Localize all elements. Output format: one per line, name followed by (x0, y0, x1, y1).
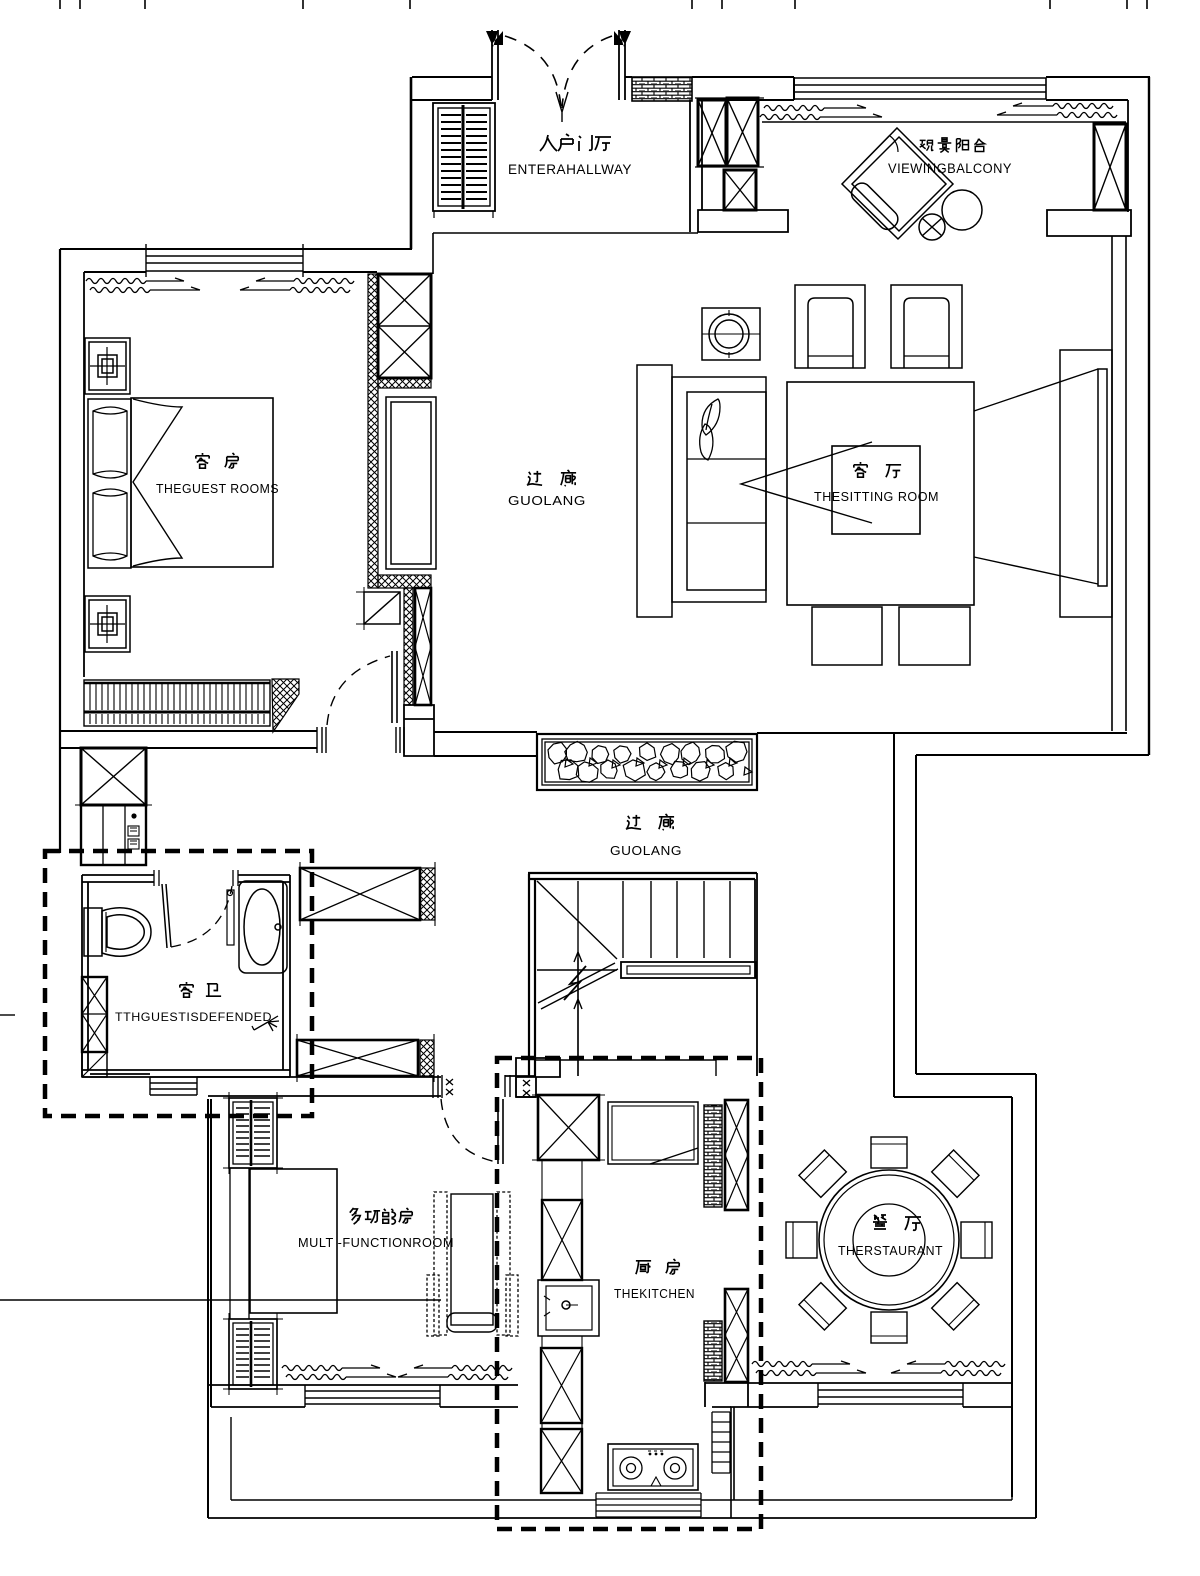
svg-text:THERSTAURANT: THERSTAURANT (838, 1244, 943, 1258)
svg-text:THESITTING ROOM: THESITTING ROOM (814, 490, 939, 504)
svg-text:THEGUEST ROOMS: THEGUEST ROOMS (156, 482, 279, 496)
svg-text:GUOLANG: GUOLANG (508, 494, 586, 508)
svg-text:MULT -FUNCTIONROOM: MULT -FUNCTIONROOM (298, 1236, 454, 1250)
svg-text:ENTERAHALLWAY: ENTERAHALLWAY (508, 162, 632, 177)
svg-text:TTHGUESTISDEFENDED: TTHGUESTISDEFENDED (115, 1010, 272, 1024)
svg-text:THEKITCHEN: THEKITCHEN (614, 1287, 695, 1301)
svg-text:VIEWINGBALCONY: VIEWINGBALCONY (888, 161, 1012, 176)
svg-text:GUOLANG: GUOLANG (610, 844, 682, 858)
